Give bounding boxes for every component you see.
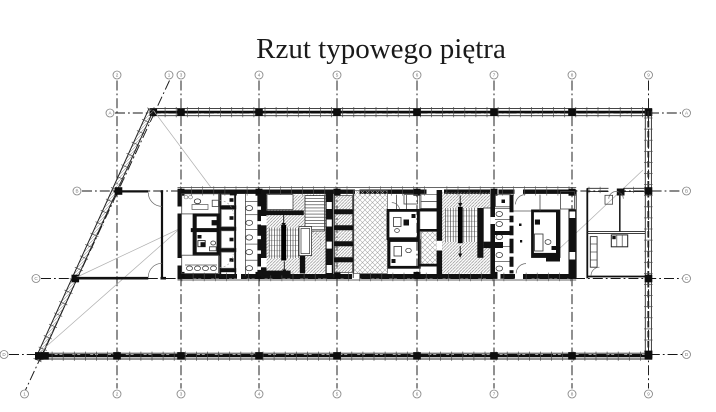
- svg-text:5: 5: [336, 73, 339, 78]
- svg-text:6: 6: [416, 392, 419, 397]
- svg-text:9: 9: [647, 73, 650, 78]
- svg-text:3: 3: [180, 392, 183, 397]
- svg-text:2: 2: [116, 73, 119, 78]
- svg-text:Rzut typowego piętra: Rzut typowego piętra: [256, 33, 506, 65]
- svg-text:7: 7: [493, 392, 496, 397]
- svg-text:4: 4: [258, 73, 261, 78]
- svg-text:5: 5: [336, 392, 339, 397]
- svg-text:B: B: [685, 189, 688, 194]
- svg-text:2: 2: [116, 392, 119, 397]
- svg-text:B: B: [75, 189, 78, 194]
- svg-text:8: 8: [571, 73, 574, 78]
- svg-text:7: 7: [493, 73, 496, 78]
- svg-text:6: 6: [416, 73, 419, 78]
- svg-text:1: 1: [168, 73, 171, 78]
- svg-text:3: 3: [180, 73, 183, 78]
- svg-text:4: 4: [258, 392, 261, 397]
- svg-text:9: 9: [647, 392, 650, 397]
- svg-text:8: 8: [571, 392, 574, 397]
- svg-text:1: 1: [23, 392, 26, 397]
